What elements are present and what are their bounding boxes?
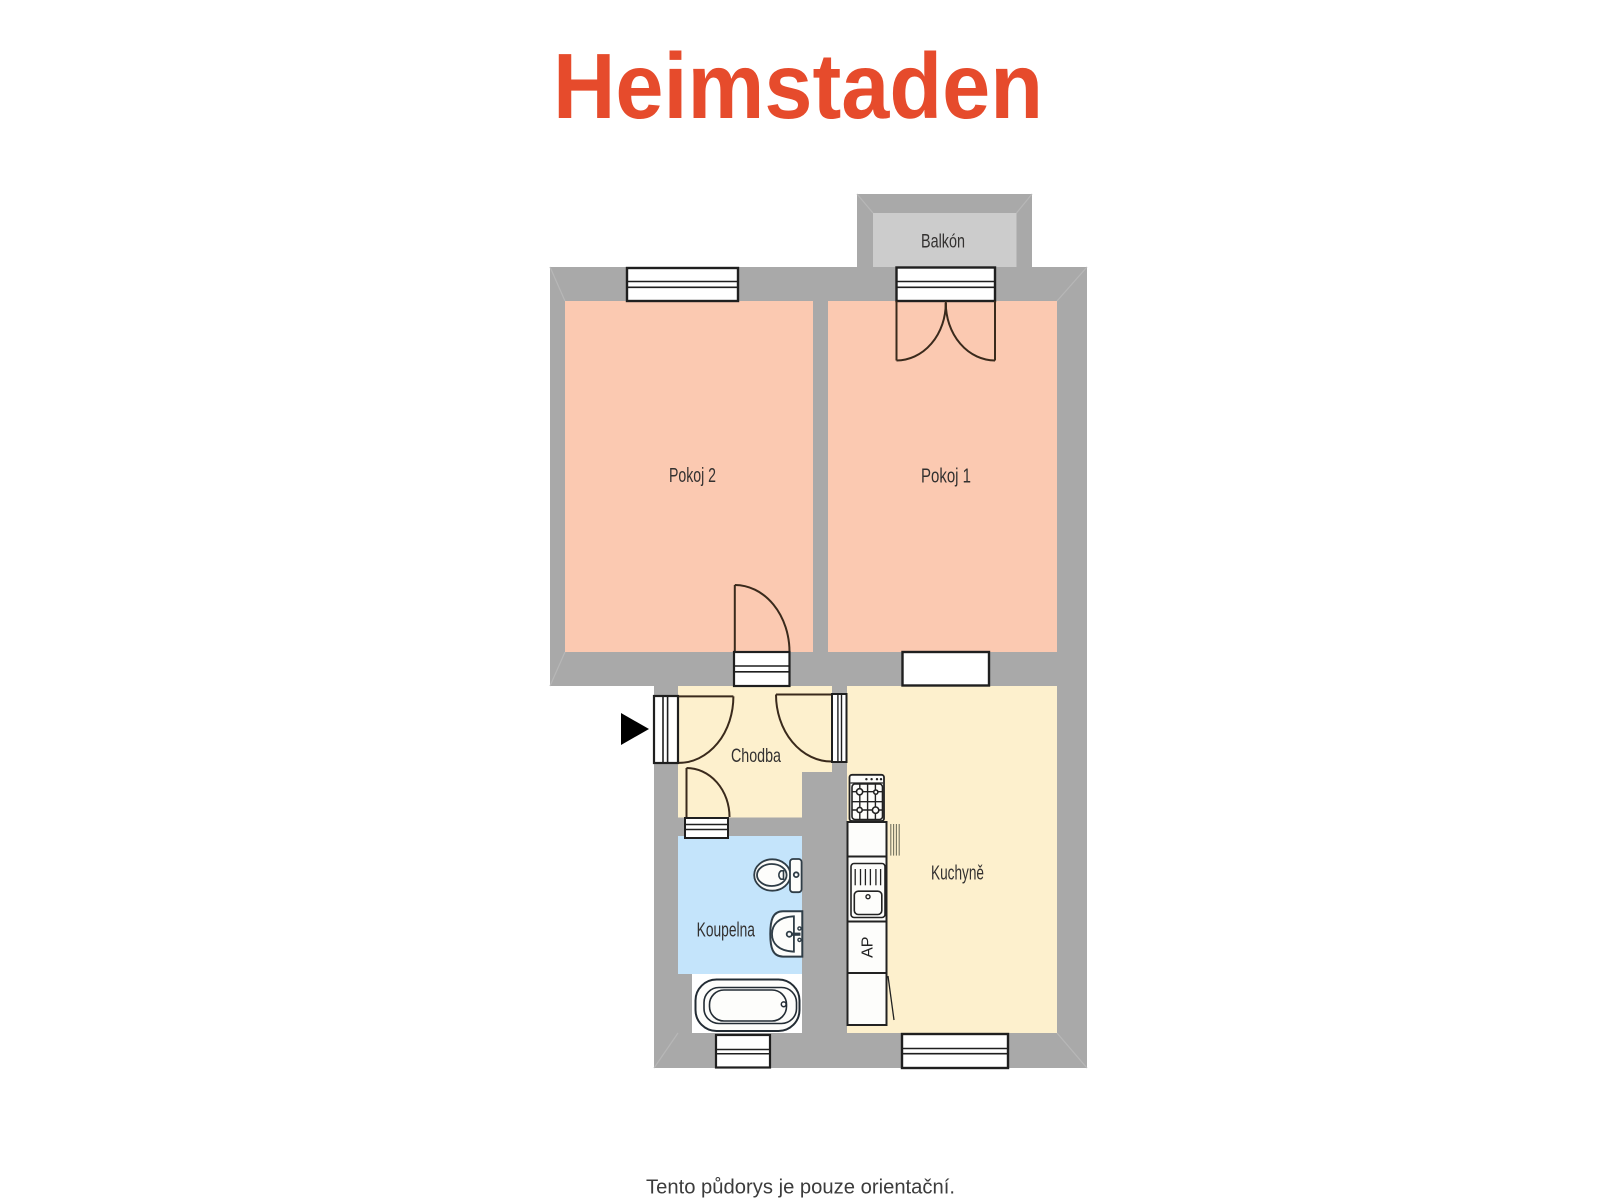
svg-text:Koupelna: Koupelna — [697, 920, 756, 942]
svg-text:Balkón: Balkón — [921, 231, 965, 253]
svg-text:Pokoj 2: Pokoj 2 — [669, 465, 716, 487]
svg-text:Kuchyně: Kuchyně — [931, 862, 984, 884]
svg-text:Chodba: Chodba — [731, 745, 781, 767]
svg-text:Tento půdorys je pouze orienta: Tento půdorys je pouze orientační. — [646, 1176, 955, 1199]
svg-text:Heimstaden: Heimstaden — [553, 34, 1043, 138]
svg-text:Pokoj 1: Pokoj 1 — [921, 466, 971, 488]
svg-text:AP: AP — [859, 937, 876, 958]
